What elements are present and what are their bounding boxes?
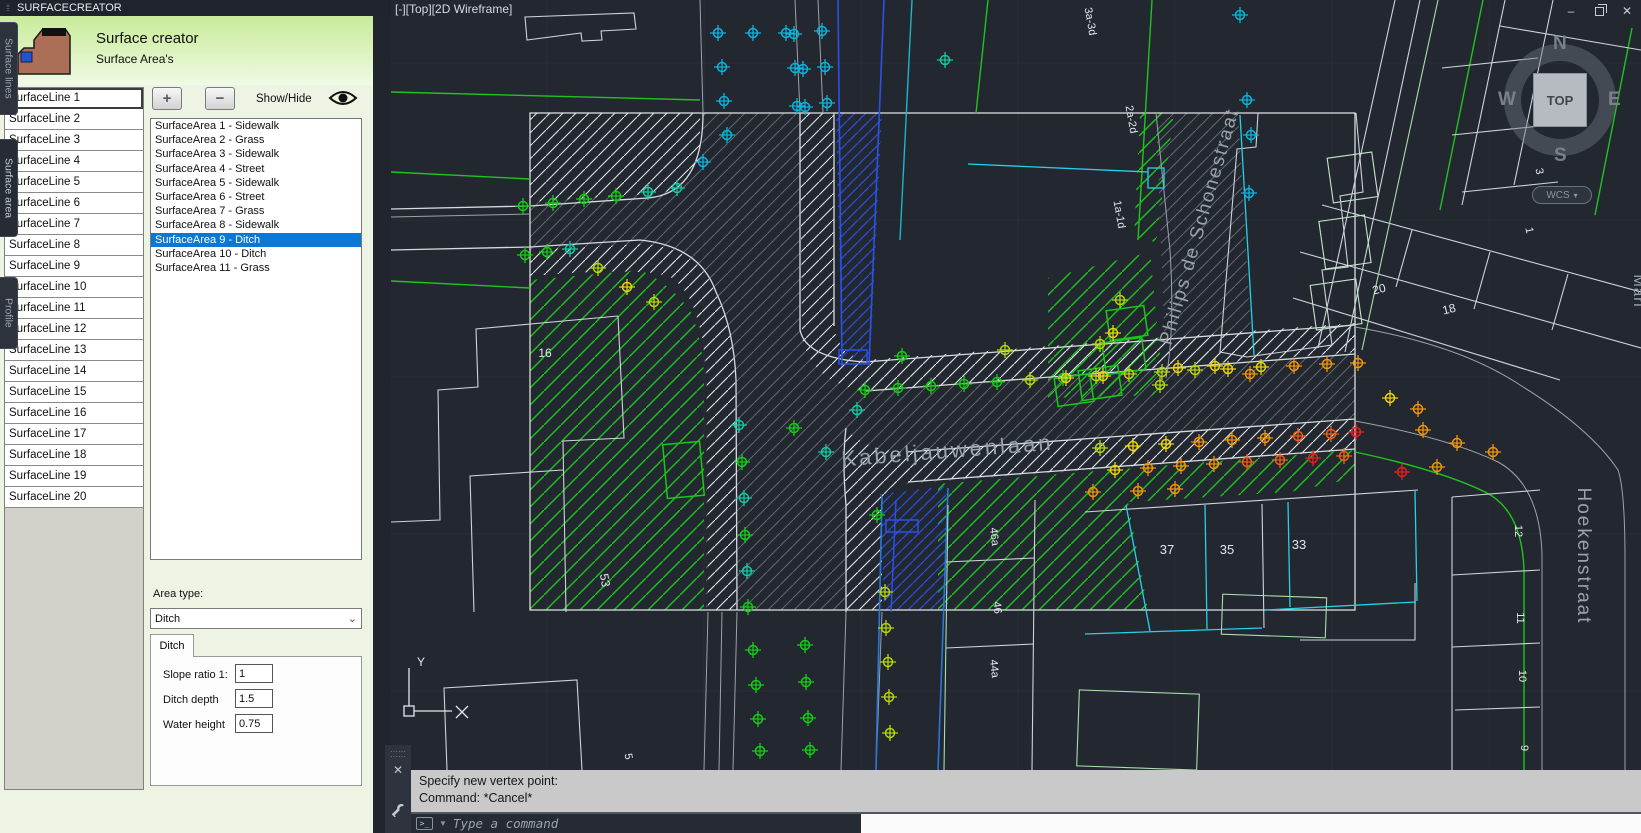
- eye-icon[interactable]: [328, 88, 358, 108]
- survey-point-marker: [802, 742, 818, 758]
- area-type-value: Ditch: [155, 613, 180, 625]
- surface-area-item[interactable]: SurfaceArea 2 - Grass: [151, 133, 361, 147]
- parcel-number-label: 37: [1160, 542, 1174, 557]
- ucs-y-label: Y: [417, 655, 425, 669]
- panel-header: Surface creator Surface Area's: [0, 16, 373, 85]
- parcel-number-label: 33: [1292, 537, 1306, 552]
- surface-line-item[interactable]: SurfaceLine 9: [5, 256, 143, 277]
- parcel-number-label: 3: [1532, 167, 1545, 175]
- panel-titlebar[interactable]: ⁞⁞ SURFACECREATOR: [0, 0, 391, 16]
- survey-point-marker: [1382, 390, 1398, 406]
- surface-line-item[interactable]: SurfaceLine 8: [5, 235, 143, 256]
- chevron-down-icon[interactable]: ▼: [439, 819, 447, 828]
- chevron-down-icon: ▾: [1574, 191, 1578, 200]
- viewport-corner-label[interactable]: [-][Top][2D Wireframe]: [395, 2, 512, 16]
- survey-point-marker: [880, 654, 896, 670]
- viewcube-south[interactable]: S: [1554, 145, 1567, 167]
- survey-point-marker: [817, 59, 833, 75]
- tab-surface-lines[interactable]: Surface lines: [0, 22, 18, 115]
- survey-point-marker: [882, 725, 898, 741]
- surface-line-item[interactable]: SurfaceLine 7: [5, 214, 143, 235]
- wrench-icon[interactable]: [391, 803, 405, 817]
- surface-line-item[interactable]: SurfaceLine 2: [5, 109, 143, 130]
- wcs-label: WCS: [1546, 190, 1569, 201]
- command-input-extension[interactable]: [861, 812, 1641, 833]
- parcel-number-label: 16: [538, 346, 552, 360]
- surface-line-item[interactable]: SurfaceLine 11: [5, 298, 143, 319]
- parcel-number-label: 11: [1514, 612, 1526, 623]
- surface-area-item[interactable]: SurfaceArea 4 - Street: [151, 162, 361, 176]
- show-hide-label: Show/Hide: [256, 93, 312, 105]
- tab-surface-area[interactable]: Surface area: [0, 139, 18, 237]
- surface-area-item[interactable]: SurfaceArea 1 - Sidewalk: [151, 119, 361, 133]
- parcel-number-label: 10: [1516, 670, 1528, 682]
- survey-point-marker: [800, 710, 816, 726]
- surface-line-item[interactable]: SurfaceLine 14: [5, 361, 143, 382]
- surface-area-item[interactable]: SurfaceArea 8 - Sidewalk: [151, 218, 361, 232]
- palette-close-icon[interactable]: ✕: [385, 763, 411, 777]
- survey-point-marker: [714, 59, 730, 75]
- parcel-number-label: 35: [1220, 542, 1234, 557]
- viewcube-north[interactable]: N: [1553, 33, 1567, 55]
- viewcube-west[interactable]: W: [1498, 89, 1516, 111]
- parcel-number-label: 1: [1522, 226, 1535, 234]
- survey-point-marker: [1239, 92, 1255, 108]
- parcel-number-label: 12: [1512, 525, 1524, 537]
- water-height-input[interactable]: [235, 714, 273, 733]
- add-button[interactable]: +: [152, 87, 182, 110]
- survey-point-marker: [515, 198, 531, 214]
- survey-point-marker: [937, 52, 953, 68]
- panel-header-subtitle: Surface Area's: [96, 52, 174, 66]
- surface-line-item[interactable]: SurfaceLine 10: [5, 277, 143, 298]
- ditch-depth-input[interactable]: [235, 689, 273, 708]
- parcel-number-label: 53: [597, 573, 613, 589]
- survey-point-marker: [1410, 401, 1426, 417]
- viewcube-top-face[interactable]: TOP: [1533, 73, 1587, 127]
- surface-area-item[interactable]: SurfaceArea 6 - Street: [151, 190, 361, 204]
- command-history-line: Specify new vertex point:: [419, 773, 1641, 790]
- restore-icon: [1595, 7, 1604, 16]
- parcel-number-label: 46: [990, 601, 1003, 614]
- survey-point-marker: [814, 23, 830, 39]
- survey-point-marker: [716, 93, 732, 109]
- survey-point-marker: [797, 637, 813, 653]
- command-input-placeholder[interactable]: Type a command: [453, 816, 558, 831]
- surface-line-item[interactable]: SurfaceLine 20: [5, 487, 143, 508]
- survey-point-marker: [710, 25, 726, 41]
- surface-line-item[interactable]: SurfaceLine 1: [5, 88, 143, 109]
- tab-ditch[interactable]: Ditch: [150, 634, 194, 657]
- viewcube-east[interactable]: E: [1608, 89, 1621, 111]
- surface-line-item[interactable]: SurfaceLine 3: [5, 130, 143, 151]
- survey-point-marker: [745, 642, 761, 658]
- command-prompt-icon: >_: [416, 817, 433, 830]
- restore-button[interactable]: [1591, 4, 1607, 18]
- parcel-number-label: 18: [1441, 301, 1458, 318]
- drag-grip-icon[interactable]: ⁞⁞: [6, 6, 9, 10]
- surface-lines-list[interactable]: SurfaceLine 1SurfaceLine 2SurfaceLine 3S…: [4, 87, 144, 790]
- survey-point-marker: [745, 25, 761, 41]
- side-tab-strip: [373, 16, 391, 833]
- palette-grip-icon[interactable]: ············: [385, 745, 411, 759]
- remove-button[interactable]: −: [205, 87, 235, 110]
- surface-area-item[interactable]: SurfaceArea 9 - Ditch: [151, 233, 361, 247]
- water-height-label: Water height: [163, 719, 225, 731]
- surface-area-item[interactable]: SurfaceArea 7 - Grass: [151, 204, 361, 218]
- street-name-label: Mari: [1630, 274, 1641, 307]
- surface-line-item[interactable]: SurfaceLine 4: [5, 151, 143, 172]
- parcel-number-label: 5: [622, 752, 635, 760]
- survey-point-marker: [1241, 185, 1257, 201]
- surface-line-item[interactable]: SurfaceLine 18: [5, 445, 143, 466]
- survey-point-marker: [1449, 435, 1465, 451]
- parcel-number-label: 2a-2d: [1123, 105, 1140, 135]
- ucs-icon: [404, 668, 468, 718]
- surface-area-item[interactable]: SurfaceArea 5 - Sidewalk: [151, 176, 361, 190]
- surface-line-item[interactable]: SurfaceLine 15: [5, 382, 143, 403]
- slope-ratio-input[interactable]: [235, 664, 273, 683]
- tab-profile[interactable]: Profile: [0, 277, 18, 349]
- drawing-canvas[interactable]: Y KabeljauwenlaanPhilips de Schonestraat…: [391, 0, 1641, 770]
- survey-point-marker: [1429, 459, 1445, 475]
- surface-areas-list[interactable]: SurfaceArea 1 - SidewalkSurfaceArea 2 - …: [150, 118, 362, 560]
- survey-point-marker: [878, 620, 894, 636]
- parcel-number-label: 46a: [987, 527, 1001, 547]
- minimize-button[interactable]: –: [1563, 4, 1579, 18]
- surface-line-item[interactable]: SurfaceLine 6: [5, 193, 143, 214]
- surface-line-item[interactable]: SurfaceLine 13: [5, 340, 143, 361]
- command-palette-sidebar: ············ ✕: [385, 745, 411, 833]
- survey-point-marker: [1415, 422, 1431, 438]
- panel-header-title: Surface creator: [96, 30, 199, 47]
- surface-creator-icon: [12, 22, 76, 78]
- ditch-depth-label: Ditch depth: [163, 694, 219, 706]
- wcs-dropdown[interactable]: WCS ▾: [1532, 186, 1592, 204]
- survey-point-marker: [1232, 7, 1248, 23]
- command-history[interactable]: Specify new vertex point: Command: *Canc…: [411, 770, 1641, 812]
- survey-point-marker: [798, 674, 814, 690]
- surface-area-item[interactable]: SurfaceArea 11 - Grass: [151, 261, 361, 275]
- parcel-number-label: 20: [1371, 281, 1388, 298]
- surface-area-item[interactable]: SurfaceArea 3 - Sidewalk: [151, 147, 361, 161]
- surface-line-item[interactable]: SurfaceLine 5: [5, 172, 143, 193]
- surface-line-item[interactable]: SurfaceLine 16: [5, 403, 143, 424]
- parcel-number-label: 9: [1518, 745, 1530, 751]
- survey-point-marker: [752, 743, 768, 759]
- surface-line-item[interactable]: SurfaceLine 17: [5, 424, 143, 445]
- panel-title: SURFACECREATOR: [17, 2, 122, 14]
- surface-line-item[interactable]: SurfaceLine 19: [5, 466, 143, 487]
- area-type-label: Area type:: [153, 588, 203, 600]
- slope-ratio-label: Slope ratio 1:: [163, 669, 228, 681]
- close-button[interactable]: ✕: [1619, 4, 1635, 18]
- parcel-number-label: 44a: [987, 659, 1001, 679]
- street-name-label: Hoekenstraat: [1573, 487, 1594, 624]
- chevron-down-icon: ⌄: [348, 612, 357, 625]
- survey-point-marker: [1394, 464, 1410, 480]
- survey-point-marker: [750, 711, 766, 727]
- application-window: Y KabeljauwenlaanPhilips de Schonestraat…: [0, 0, 1641, 833]
- surface-line-item[interactable]: SurfaceLine 12: [5, 319, 143, 340]
- area-type-select[interactable]: Ditch ⌄: [150, 608, 362, 629]
- parcel-number-label: 1a-1d: [1111, 200, 1128, 230]
- survey-point-marker: [819, 95, 835, 111]
- window-controls: – ✕: [1563, 4, 1635, 18]
- command-input-bar[interactable]: >_ ▼ Type a command: [411, 812, 861, 833]
- parcel-number-label: 3a-3d: [1082, 7, 1099, 37]
- command-history-line: Command: *Cancel*: [419, 790, 1641, 807]
- surface-area-item[interactable]: SurfaceArea 10 - Ditch: [151, 247, 361, 261]
